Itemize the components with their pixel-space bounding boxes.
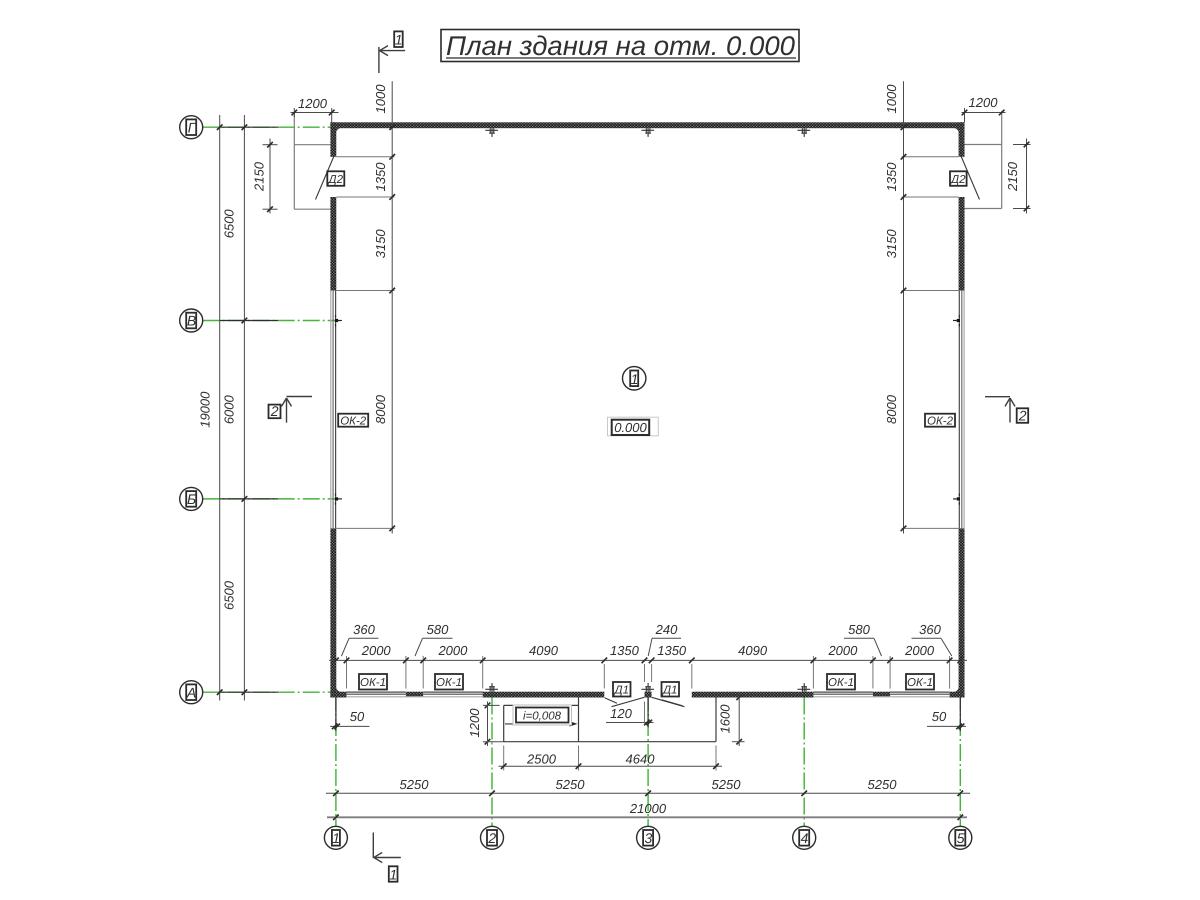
- svg-text:А: А: [186, 684, 196, 700]
- svg-text:1350: 1350: [610, 643, 640, 658]
- svg-text:3: 3: [645, 830, 653, 846]
- svg-text:5250: 5250: [556, 777, 586, 792]
- svg-text:i=0,008: i=0,008: [523, 711, 562, 723]
- svg-text:4640: 4640: [626, 752, 656, 767]
- svg-text:8000: 8000: [373, 394, 388, 424]
- svg-text:360: 360: [919, 622, 941, 637]
- svg-text:1200: 1200: [969, 95, 999, 110]
- svg-text:2: 2: [1018, 408, 1027, 424]
- svg-text:2000: 2000: [904, 643, 935, 658]
- svg-text:1200: 1200: [298, 96, 328, 111]
- svg-text:1: 1: [332, 830, 340, 846]
- svg-text:2000: 2000: [827, 643, 858, 658]
- svg-text:4: 4: [801, 830, 809, 846]
- svg-text:В: В: [187, 313, 196, 329]
- svg-text:ОК-2: ОК-2: [927, 416, 954, 428]
- svg-text:50: 50: [932, 709, 947, 724]
- svg-text:Д2: Д2: [327, 174, 344, 186]
- svg-text:5: 5: [957, 830, 965, 846]
- svg-text:ОК-1: ОК-1: [360, 677, 386, 689]
- svg-text:5250: 5250: [868, 777, 898, 792]
- svg-text:1350: 1350: [373, 162, 388, 192]
- svg-text:2: 2: [487, 830, 496, 846]
- svg-text:50: 50: [350, 709, 365, 724]
- svg-text:1: 1: [631, 371, 639, 387]
- svg-text:Д1: Д1: [613, 685, 630, 697]
- svg-text:6000: 6000: [222, 394, 237, 424]
- svg-text:4090: 4090: [738, 643, 768, 658]
- svg-text:ОК-1: ОК-1: [436, 677, 462, 689]
- svg-text:План здания на отм. 0.000: План здания на отм. 0.000: [446, 31, 795, 61]
- svg-text:4090: 4090: [529, 643, 559, 658]
- svg-text:1: 1: [395, 32, 403, 48]
- svg-text:1350: 1350: [657, 643, 687, 658]
- svg-text:1: 1: [389, 866, 397, 882]
- svg-text:ОК-2: ОК-2: [340, 416, 367, 428]
- svg-text:21000: 21000: [629, 801, 667, 816]
- svg-text:6500: 6500: [222, 209, 237, 239]
- svg-text:3150: 3150: [373, 229, 388, 259]
- svg-text:120: 120: [610, 706, 632, 721]
- svg-text:5250: 5250: [712, 777, 742, 792]
- svg-text:5250: 5250: [400, 777, 430, 792]
- svg-text:ОК-1: ОК-1: [828, 677, 854, 689]
- svg-text:2150: 2150: [1005, 161, 1020, 192]
- svg-text:2500: 2500: [526, 752, 557, 767]
- svg-text:1200: 1200: [467, 708, 482, 738]
- svg-text:Б: Б: [187, 491, 196, 507]
- svg-text:1000: 1000: [884, 84, 899, 114]
- svg-text:2: 2: [270, 403, 279, 419]
- svg-text:ОК-1: ОК-1: [907, 677, 933, 689]
- svg-text:19000: 19000: [198, 391, 213, 428]
- svg-text:2150: 2150: [252, 161, 267, 192]
- svg-text:6500: 6500: [222, 580, 237, 610]
- svg-text:Д2: Д2: [949, 174, 966, 186]
- svg-text:0.000: 0.000: [614, 420, 647, 435]
- svg-text:1000: 1000: [373, 84, 388, 114]
- svg-text:2000: 2000: [437, 643, 468, 658]
- svg-text:360: 360: [353, 622, 375, 637]
- svg-text:240: 240: [655, 622, 678, 637]
- svg-text:Д1: Д1: [661, 685, 678, 697]
- svg-text:2000: 2000: [361, 643, 392, 658]
- svg-text:580: 580: [427, 622, 449, 637]
- svg-text:1600: 1600: [718, 704, 733, 734]
- svg-text:580: 580: [848, 622, 870, 637]
- svg-text:1350: 1350: [884, 162, 899, 192]
- svg-text:8000: 8000: [884, 394, 899, 424]
- svg-text:3150: 3150: [884, 229, 899, 259]
